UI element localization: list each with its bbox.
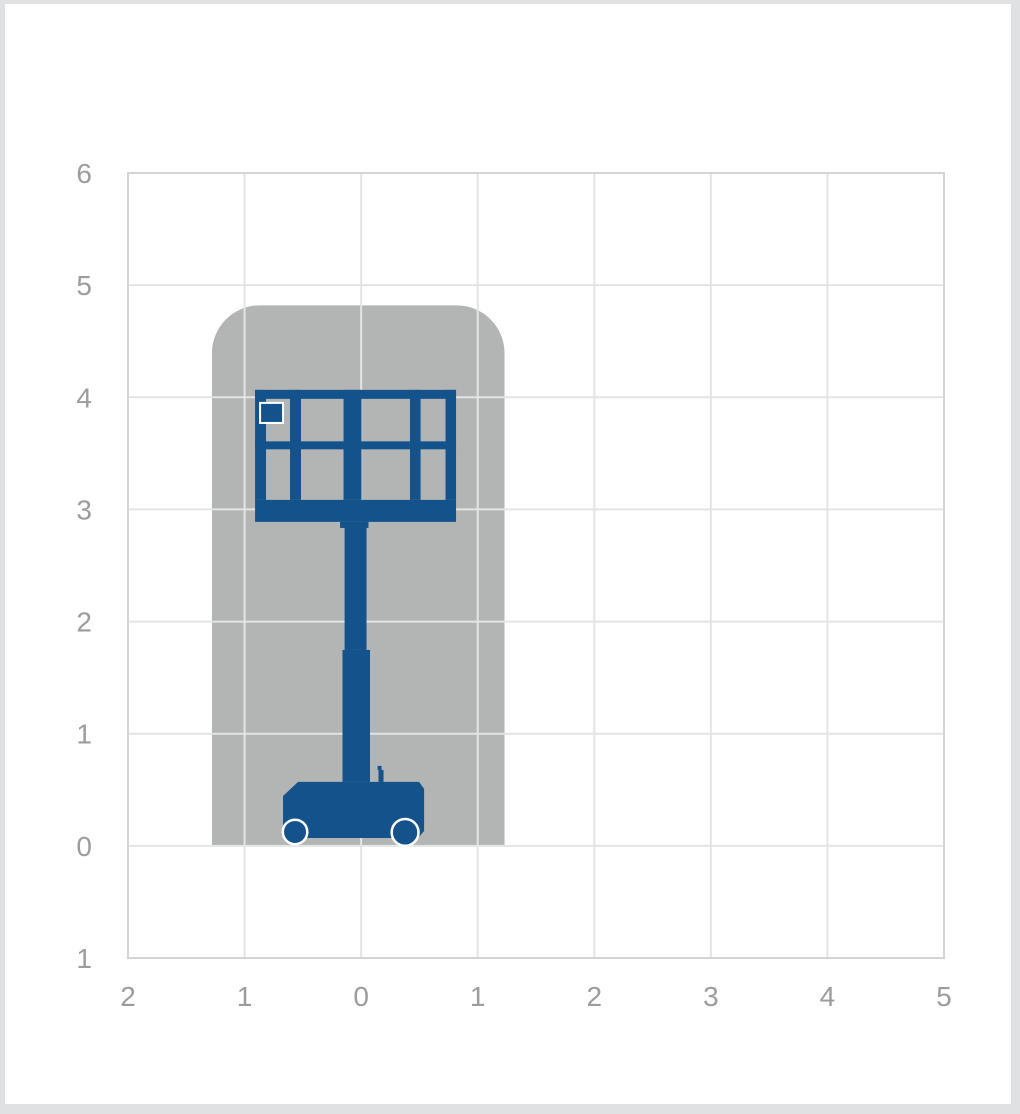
x-tick-label: 1: [237, 981, 253, 1012]
envelope-chart-svg: 2101234510123456: [0, 0, 1020, 1114]
y-tick-label: 6: [76, 158, 92, 189]
y-tick-label: 4: [76, 382, 92, 413]
x-tick-label: 4: [820, 981, 836, 1012]
x-tick-label: 5: [936, 981, 952, 1012]
y-tick-label: 1: [76, 719, 92, 750]
platform-control-box: [260, 403, 283, 423]
y-tick-label: 0: [76, 831, 92, 862]
x-tick-label: 3: [703, 981, 719, 1012]
control-lever-knob: [378, 766, 382, 770]
y-tick-label: 3: [76, 494, 92, 525]
y-tick-label: 5: [76, 270, 92, 301]
x-tick-label: 0: [353, 981, 369, 1012]
right-wheel: [392, 819, 419, 846]
control-lever: [379, 770, 384, 782]
left-wheel: [283, 820, 307, 844]
platform-floor: [255, 500, 456, 522]
y-tick-label: 1: [76, 943, 92, 974]
mast-upper: [345, 522, 367, 650]
x-tick-label: 1: [470, 981, 486, 1012]
y-tick-label: 2: [76, 607, 92, 638]
x-tick-label: 2: [586, 981, 602, 1012]
page-frame: 2101234510123456: [0, 0, 1020, 1114]
x-tick-label: 2: [120, 981, 136, 1012]
mast-lower: [342, 650, 370, 782]
platform-mid-rail: [255, 441, 456, 449]
